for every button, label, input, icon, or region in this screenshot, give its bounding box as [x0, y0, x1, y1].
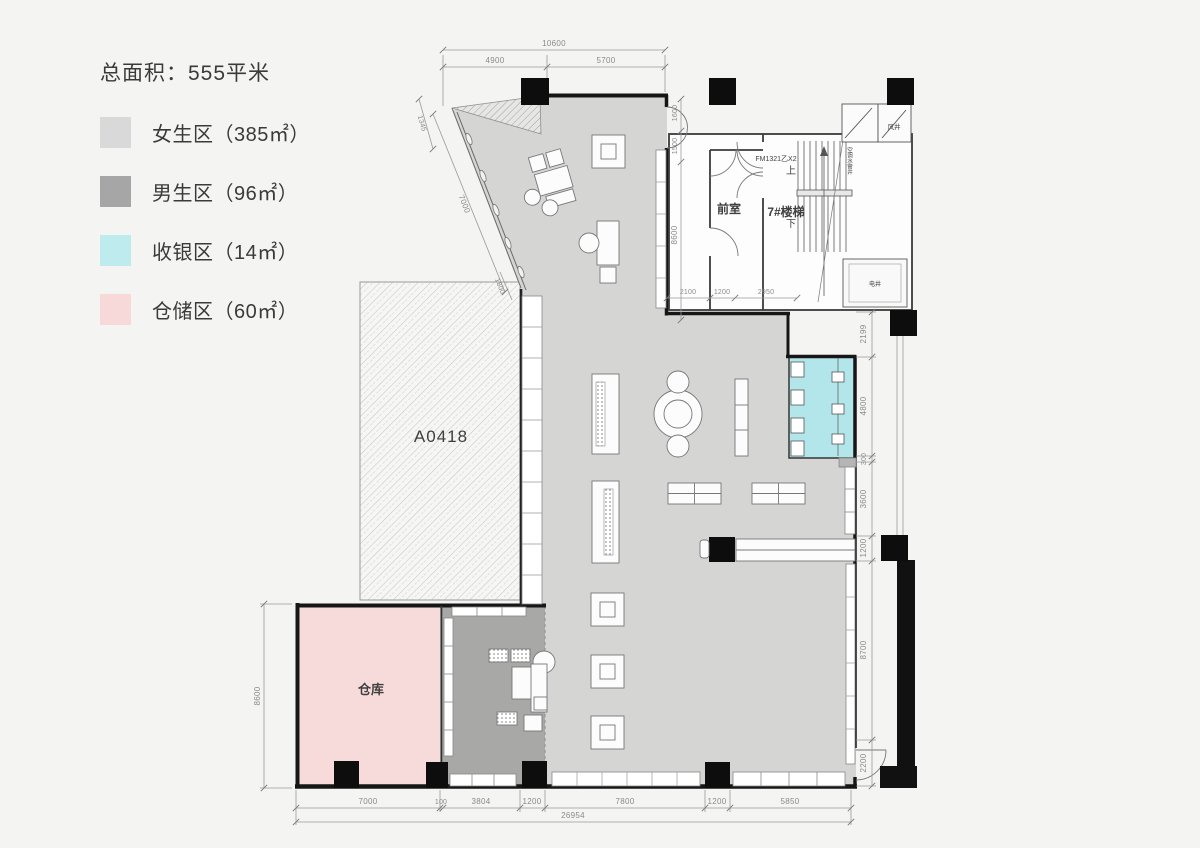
floor-plan-svg: A0418	[0, 0, 1200, 848]
outer-right-wall	[880, 336, 917, 788]
dim-bottom-1: 7000	[359, 797, 378, 806]
dim-bottom-4: 1200	[523, 797, 542, 806]
dim-core-b3: 2950	[758, 289, 774, 296]
dim-right-5: 1200	[859, 538, 868, 557]
room-a0418: A0418	[360, 282, 520, 600]
dim-diag-small: 1345	[416, 115, 427, 133]
warehouse-label: 仓库	[357, 682, 384, 697]
dim-right-4: 3600	[859, 489, 868, 508]
dim-left-height: 8600	[253, 686, 262, 705]
stair-label: 7#楼梯	[767, 204, 804, 219]
dim-door-top: 1600	[672, 105, 679, 121]
dim-right-7: 2200	[859, 753, 868, 772]
dim-bottom-6: 1200	[708, 797, 727, 806]
dim-core-height: 8600	[670, 225, 679, 244]
dim-diag-main: 7000	[457, 194, 473, 215]
a0418-label: A0418	[414, 427, 468, 446]
pipe-shaft-label: 空调水管井	[846, 146, 853, 176]
dim-top-right: 5700	[597, 56, 616, 65]
dim-bottom-7: 5850	[781, 797, 800, 806]
dim-top-left: 4900	[486, 56, 505, 65]
stair-up-label: 上	[786, 165, 796, 177]
dim-bottom-2: 100	[435, 799, 447, 806]
dim-right-2: 4800	[859, 396, 868, 415]
fire-door-label: FM1321乙X2	[755, 155, 796, 163]
dim-bottom-total: 26954	[561, 811, 585, 820]
dim-bottom-5: 7800	[616, 797, 635, 806]
stair-down-label: 下	[786, 219, 796, 230]
dim-core-b1: 2100	[680, 289, 696, 296]
dim-core-b2: 1200	[714, 289, 730, 296]
dim-top-total: 10600	[542, 39, 566, 48]
shaft-boxes	[842, 104, 911, 142]
dim-bottom-3: 3804	[472, 797, 491, 806]
dim-right-6: 8700	[859, 640, 868, 659]
dim-door-bottom: 1500	[672, 138, 679, 154]
front-room-label: 前室	[717, 201, 741, 216]
dim-right-3: 300	[861, 453, 868, 465]
dim-right-1: 2199	[859, 324, 868, 343]
wind-shaft-label: 风井	[888, 122, 902, 131]
utility-shaft-label: 电井	[869, 280, 881, 288]
